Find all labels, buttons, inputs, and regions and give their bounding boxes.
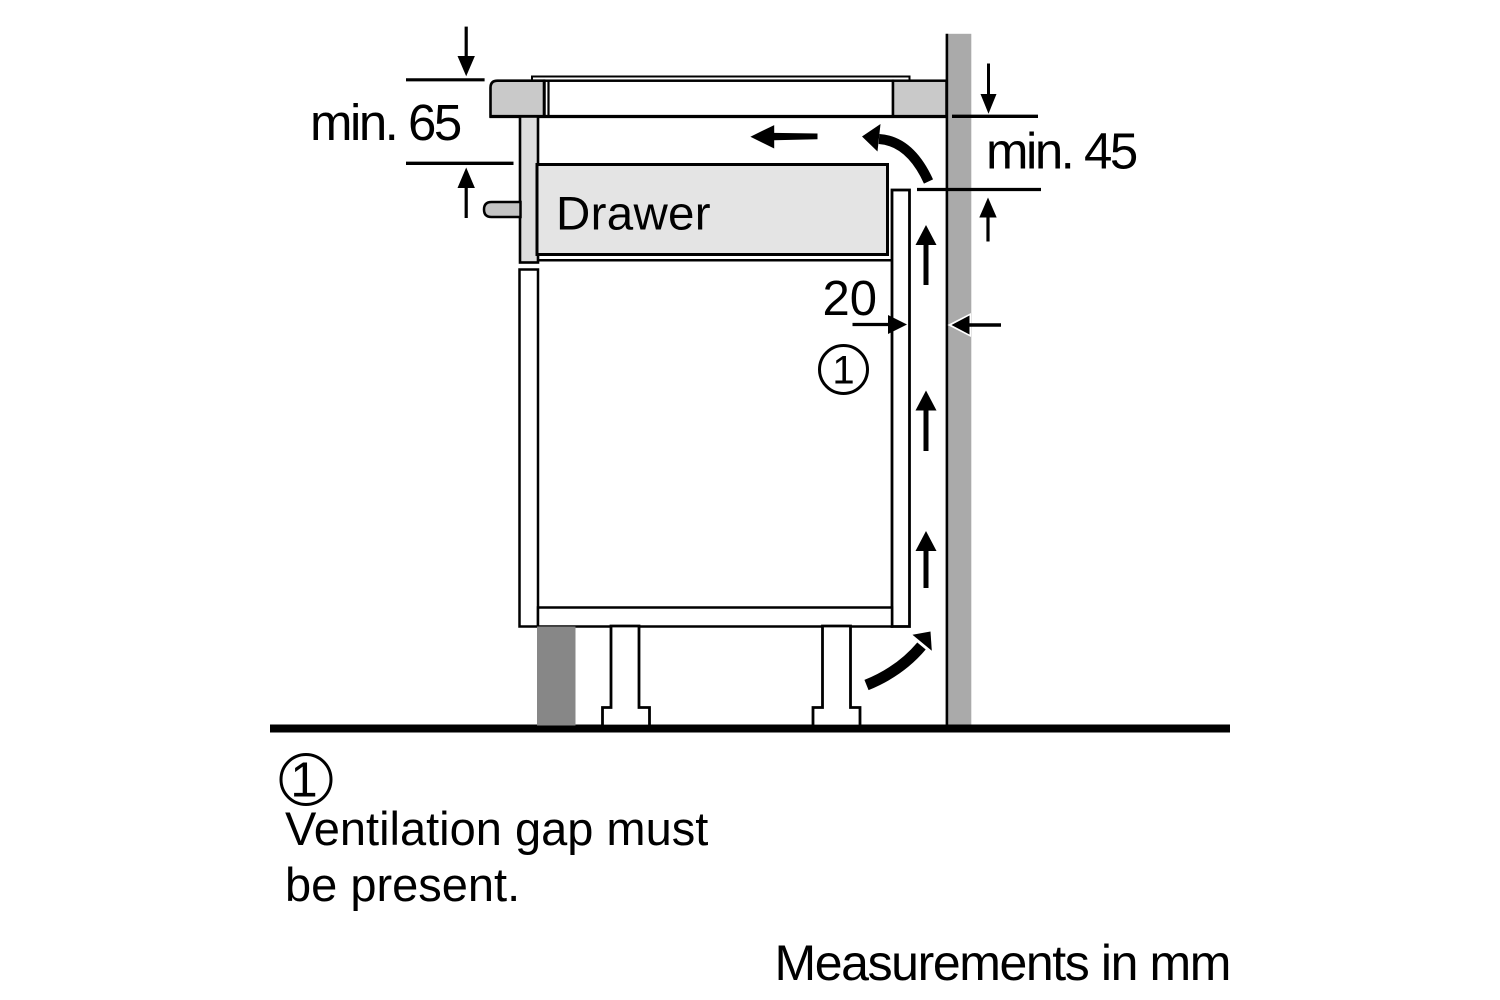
svg-text:Measurements in mm: Measurements in mm [775,935,1231,991]
svg-text:Drawer: Drawer [556,188,711,241]
svg-text:20: 20 [823,272,878,326]
svg-text:1: 1 [290,754,317,808]
svg-text:Ventilation gap must: Ventilation gap must [285,802,708,855]
svg-text:1: 1 [832,349,854,393]
svg-text:min. 65: min. 65 [310,94,461,151]
svg-text:min. 45: min. 45 [986,123,1137,180]
svg-text:be present.: be present. [285,858,520,911]
